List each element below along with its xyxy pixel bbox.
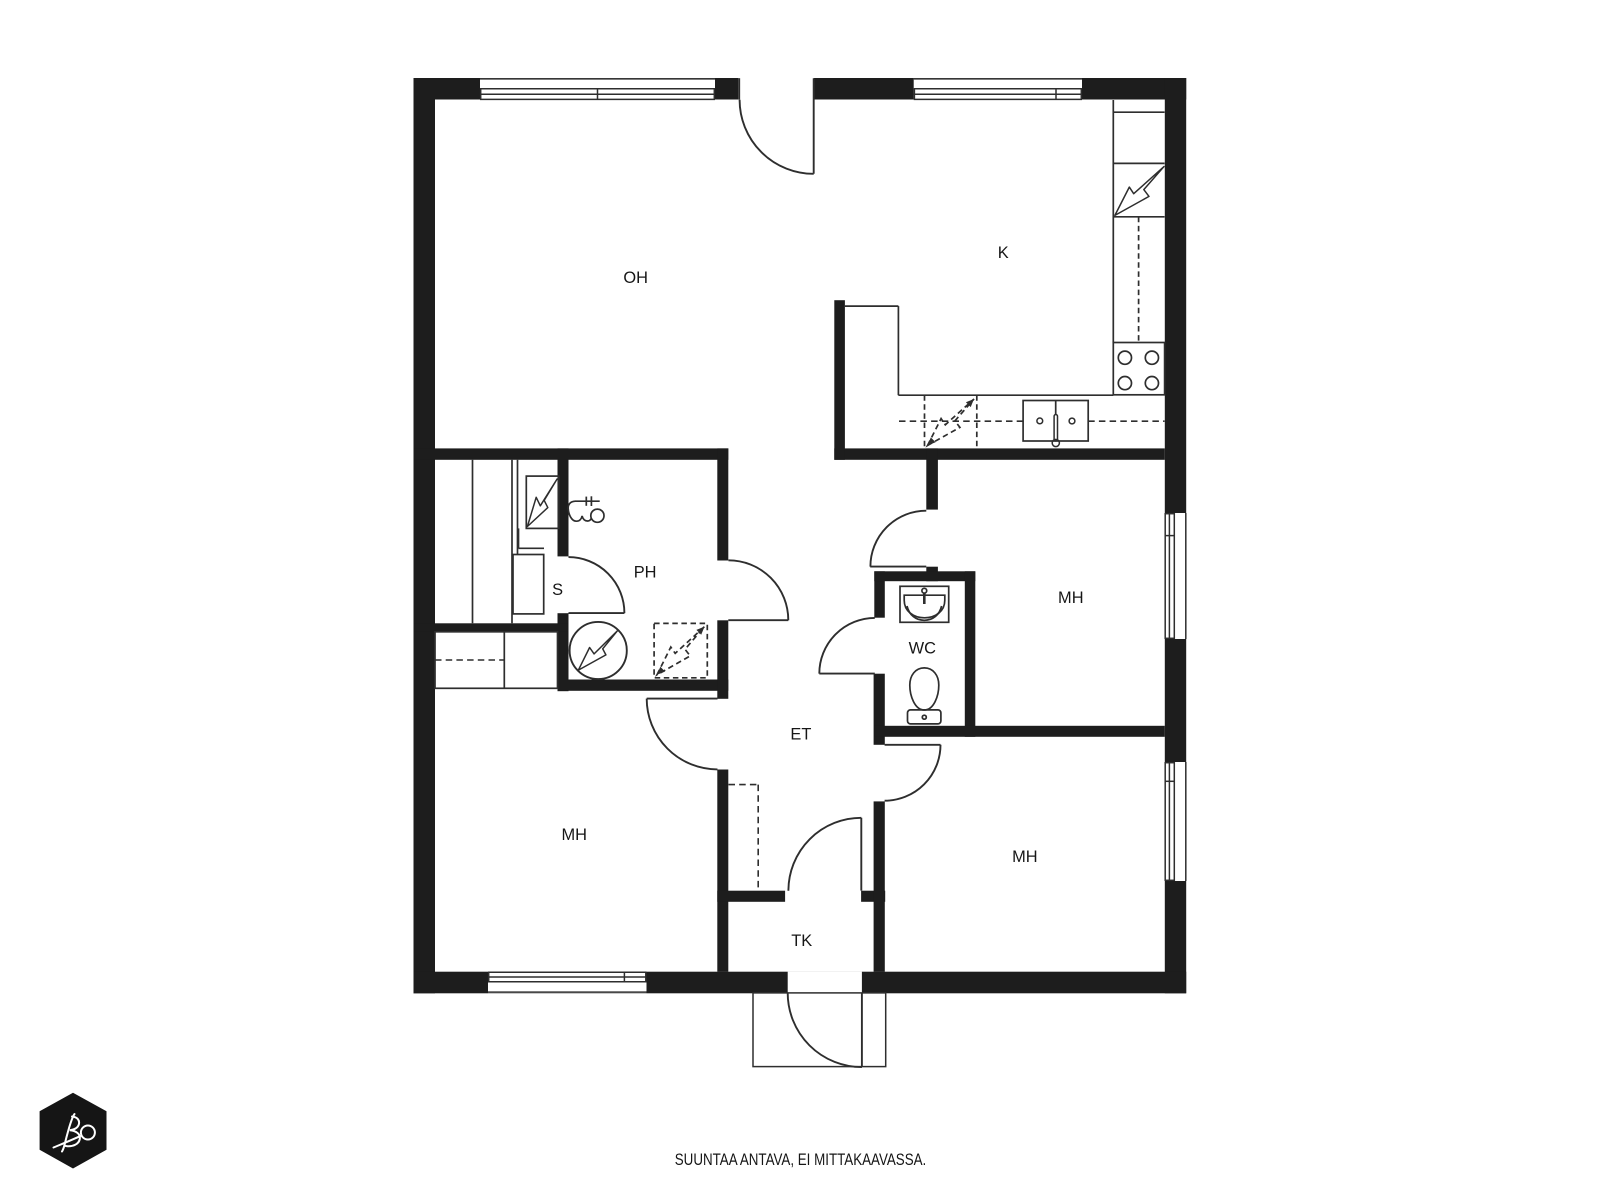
svg-text:K: K — [998, 244, 1009, 262]
svg-text:MH: MH — [1058, 589, 1084, 607]
svg-text:ET: ET — [790, 726, 811, 744]
svg-text:SUUNTAA ANTAVA, EI MITTAKAAVAS: SUUNTAA ANTAVA, EI MITTAKAAVASSA. — [675, 1151, 927, 1169]
svg-text:TK: TK — [791, 932, 812, 950]
svg-text:MH: MH — [561, 826, 587, 844]
svg-text:MH: MH — [1012, 848, 1038, 866]
svg-text:WC: WC — [909, 640, 936, 658]
svg-text:OH: OH — [623, 269, 648, 287]
svg-text:PH: PH — [634, 564, 657, 582]
svg-text:S: S — [552, 581, 563, 599]
